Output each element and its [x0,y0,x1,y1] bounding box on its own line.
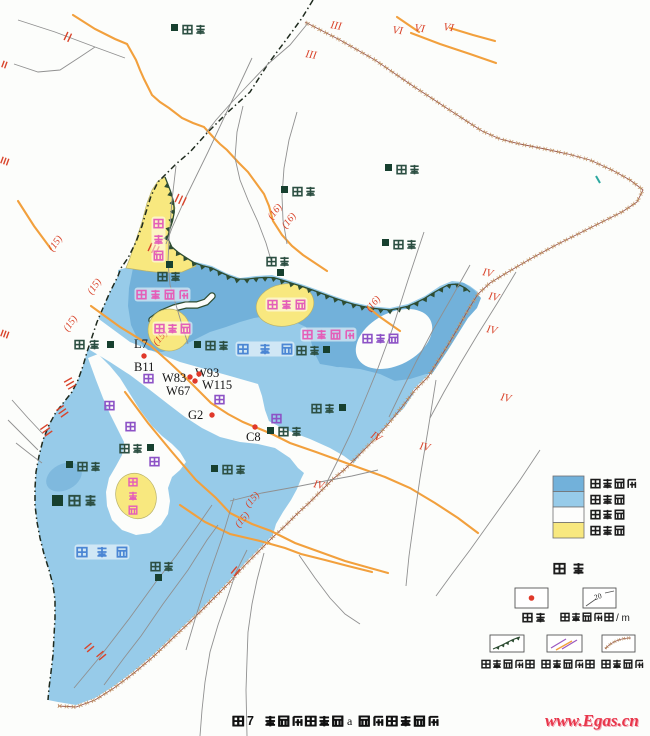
svg-text:W83: W83 [162,371,186,385]
svg-text:W115: W115 [202,378,232,392]
svg-text:C8: C8 [246,430,261,444]
svg-text:/ m: / m [616,613,630,624]
svg-text:L7: L7 [134,337,148,351]
svg-text:7: 7 [247,714,254,728]
svg-text:a: a [347,714,353,728]
svg-text:B11: B11 [134,360,154,374]
svg-text:G2: G2 [188,408,203,422]
svg-text:W67: W67 [166,384,190,398]
svg-text:www.Egas.cn: www.Egas.cn [545,711,639,730]
